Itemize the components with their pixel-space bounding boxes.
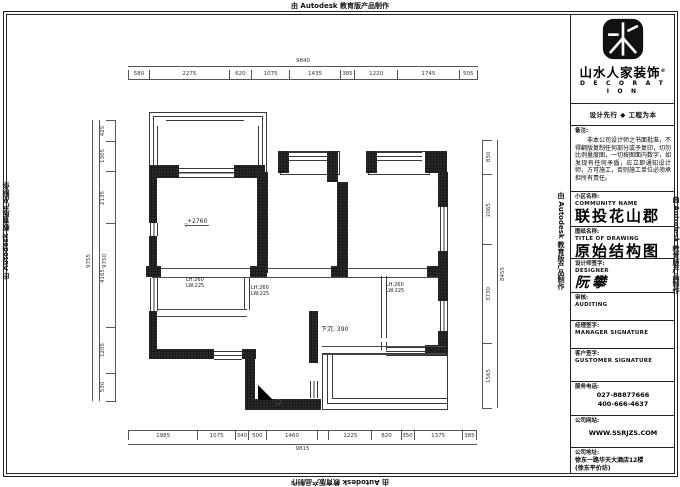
dimension-label: 2135 [100,191,106,205]
wall-segment [331,266,348,277]
dimension-label: 9815 [296,446,310,452]
window-symbol [150,223,158,236]
dimension-label: 4165 [100,269,106,283]
window-symbol [214,351,242,360]
window-symbol [440,301,448,331]
audit-section: 审核: AUDITING [571,293,675,321]
dimension-label: 8455 [500,267,506,281]
dimension-overall-bottom: 9815 [128,444,477,454]
balcony-railing [332,353,447,399]
beam-label: LH:260LW:225 [386,282,404,294]
dimension-label: 1375 [431,433,445,439]
window-symbol [258,126,267,168]
dimension-label: 1205 [100,343,106,357]
dimension-chain-top: 580 2275 620 1075 1435 385 1220 1745 505 [128,70,478,80]
manager-label: 经理签字: [575,323,671,330]
website-label: 公司网站: [575,418,671,425]
wall-segment [309,311,318,363]
drawing-title-value: 原始结构图 [575,243,671,259]
dimension-label: 2275 [182,71,196,77]
beam-label: LH:260LW:225 [186,277,204,289]
dimension-chain-right: 830 2065 3730 1565 [482,140,492,409]
window-symbol [150,278,158,311]
website-value: WWW.SSRJZS.COM [575,429,671,438]
wall-segment [366,151,377,173]
window-symbol [440,207,448,251]
window-symbol [374,152,422,161]
dimension-label: 1435 [308,71,322,77]
audit-label: 审核: [575,295,671,302]
dimension-label: 1225 [343,433,357,439]
wall-segment [250,266,267,277]
wall-segment [245,399,321,410]
phone-number-1: 027-88877666 [575,391,671,400]
dimension-label: 580 [134,71,145,77]
notes-text: 非本公司设计师之书面批准，不得翻版复制任何部分或予复印，切勿比例量度图，一切按图… [575,137,671,182]
brand-logo-icon [602,18,644,60]
address-label: 公司地址: [575,450,671,457]
wall-segment [425,151,447,173]
brand-name-en: D E C O R A T I O N [575,80,671,96]
dimension-label: 1745 [421,71,435,77]
dimension-label: 820 [381,433,392,439]
registered-mark: ® [661,68,667,74]
community-label: 小区名称: [575,194,671,201]
notes-section: 备注: 非本公司设计师之书面批准，不得翻版复制任何部分或予复印，切勿比例量度图，… [571,126,675,192]
notes-label: 备注: [575,128,671,135]
phone-section: 服务电话: 027-88877666 400-666-4637 [571,382,675,416]
window-symbol [149,126,158,168]
dimension-label: 505 [463,71,474,77]
designer-signature: 阮攀 [575,275,671,291]
sunken-label: 下沉: 390 [321,324,348,333]
dimension-label: 2065 [486,203,492,217]
dimension-label: 340 [237,433,248,439]
dimension-label: 1460 [285,433,299,439]
wall-segment [257,172,268,273]
address-value: 徐东一路华天大酒店12楼 [575,457,671,465]
dimension-label: 1075 [264,71,278,77]
address-section: 公司地址: 徐东一路华天大酒店12楼 (徐东平价坊) [571,448,675,474]
drain-icon [275,399,281,405]
website-section: 公司网站: WWW.SSRJZS.COM [571,416,675,448]
window-symbol [310,381,318,398]
window-symbol [166,112,244,121]
dimension-label: 385 [342,71,353,77]
dimension-overall-top: 9840 [128,58,478,67]
dimension-label: 1075 [210,433,224,439]
wall-segment [149,172,157,223]
wall-segment [337,182,348,273]
drawing-title-label: 图纸名称: [575,229,671,236]
wall-segment [278,151,289,173]
logo-section: 山水人家装饰® D E C O R A T I O N [571,14,675,104]
flue-icon [258,385,273,400]
dimension-overall-right: 8455 [497,140,498,408]
brand-name: 山水人家装饰® [575,64,671,80]
dimension-label: 830 [486,152,492,163]
window-symbol [179,168,234,178]
window-symbol [286,152,332,161]
beam-lines [157,309,247,317]
wall-segment [149,349,214,359]
manager-label-en: MANAGER SIGNATURE [575,330,671,337]
dimension-label: 425 [100,126,106,137]
designer-label-en: DESIGNER [575,268,671,275]
wall-segment [438,273,448,301]
community-value: 联投花山郡 [575,208,671,225]
designer-section: 设计师签字: DESIGNER 阮攀 [571,259,675,293]
wall-segment [146,266,161,277]
drawing-title-section: 图纸名称: TITLE OF DRAWING 原始结构图 [571,227,675,259]
dimension-label: 9755 [86,254,92,268]
customer-section: 客户签字: GUSTOMER SIGNATURE [571,349,675,382]
elevation-marker-icon: ▽ [184,223,188,229]
community-section: 小区名称: COMMUNITY NAME 联投花山郡 [571,192,675,227]
designer-label: 设计师签字: [575,261,671,268]
elevation-value: +2760 [187,218,207,225]
dimension-chain-left: 425 1305 2135 4165 1205 530 [106,120,116,402]
customer-label: 客户签字: [575,351,671,358]
dimension-label: 1220 [369,71,383,77]
beam-label: LH:260LW:225 [251,285,269,297]
dimension-label: 1305 [100,149,106,163]
dimension-label: 1985 [156,433,170,439]
customer-label-en: GUSTOMER SIGNATURE [575,358,671,365]
dimension-label: 500 [252,433,263,439]
wall-segment [438,172,448,207]
drawing-sheet: { "watermark": "由 Autodesk 教育版产品制作", "lo… [0,0,680,487]
elevation-label: +2760▽ [185,218,209,226]
dimension-label: 385 [464,433,475,439]
balcony-outline [153,116,263,169]
address-value-2: (徐东平价坊) [575,465,671,473]
dimension-label: 1565 [486,369,492,383]
dimension-label: 3730 [486,287,492,301]
dimension-label: 350 [402,433,413,439]
dimension-chain-bottom: 1985 1075 340 500 1460 1225 820 350 1375… [128,430,477,440]
wall-segment [327,151,338,182]
dimension-label: 620 [235,71,246,77]
dimension-label: 530 [100,382,106,393]
tagline-section: 设计先行 ◆ 工程为本 [571,104,675,126]
dimension-label: 9840 [296,58,310,64]
dimension-overall-left: 9755 [92,120,93,401]
phone-label: 服务电话: [575,384,671,391]
manager-section: 经理签字: MANAGER SIGNATURE [571,321,675,349]
title-block: 山水人家装饰® D E C O R A T I O N 设计先行 ◆ 工程为本 … [570,14,675,474]
audit-label-en: AUDITING [575,302,671,309]
phone-number-2: 400-666-4637 [575,400,671,409]
partition-wall [244,278,250,310]
